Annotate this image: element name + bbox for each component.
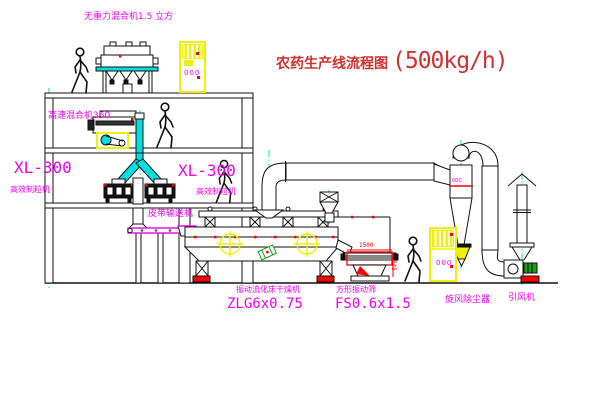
dryer-exhaust-duct <box>255 161 447 218</box>
induced-draft-fan <box>504 260 539 282</box>
control-cabinet-2 <box>430 228 456 281</box>
fan-inlet-duct <box>482 166 505 276</box>
gravity-free-mixer <box>96 42 158 93</box>
process-flow-diagram: 农药生产线流程图 (500kg/h) 无重力混合机1.5 立方 高速混合机350… <box>0 0 600 403</box>
title-text: 农药生产线流程图 <box>276 53 388 73</box>
label-belt-conveyor: 皮带输送机 <box>148 210 193 219</box>
label-high-speed-mixer: 高速混合机350 <box>48 112 110 121</box>
cabinet-1-display: 000 <box>184 70 200 77</box>
label-dryer-name: 振动流化床干燥机 <box>236 286 300 294</box>
person-figure <box>72 48 88 93</box>
dim-cyclone-diameter: 600 <box>452 179 462 184</box>
label-cyclone: 旋风除尘器 <box>445 296 490 305</box>
diagram-title: 农药生产线流程图 (500kg/h) <box>276 48 508 74</box>
person-figure <box>157 103 173 148</box>
label-fan: 引风机 <box>508 294 535 303</box>
person-figure <box>405 237 421 282</box>
mixer-discharge-chute <box>136 119 143 155</box>
label-granulator-left-name: 高效制粒机 <box>10 186 50 194</box>
dim-sieve-length: 1500 <box>359 243 373 249</box>
title-capacity: (500kg/h) <box>392 48 508 74</box>
exhaust-stack <box>508 174 536 260</box>
granulator-right <box>145 184 175 203</box>
floor-slab-3 <box>45 203 253 208</box>
cabinet-2-display: 000 <box>436 260 452 267</box>
label-granulator-right-model: XL-300 <box>178 163 236 179</box>
roof-slab <box>45 93 253 98</box>
label-granulator-right-name: 高效制粒机 <box>196 188 236 196</box>
granulator-left <box>104 184 134 203</box>
label-granulator-left-model: XL-300 <box>14 160 72 176</box>
label-dryer-model: ZLG6x0.75 <box>227 297 303 311</box>
control-cabinet-1 <box>180 42 205 92</box>
label-sieve-name: 方形振动筛 <box>336 286 376 294</box>
label-gravity-mixer: 无重力混合机1.5 立方 <box>84 13 173 22</box>
label-sieve-model: FS0.6x1.5 <box>335 297 411 311</box>
dim-sieve-height: 545 <box>390 260 396 271</box>
floor-slab-2 <box>45 148 253 153</box>
